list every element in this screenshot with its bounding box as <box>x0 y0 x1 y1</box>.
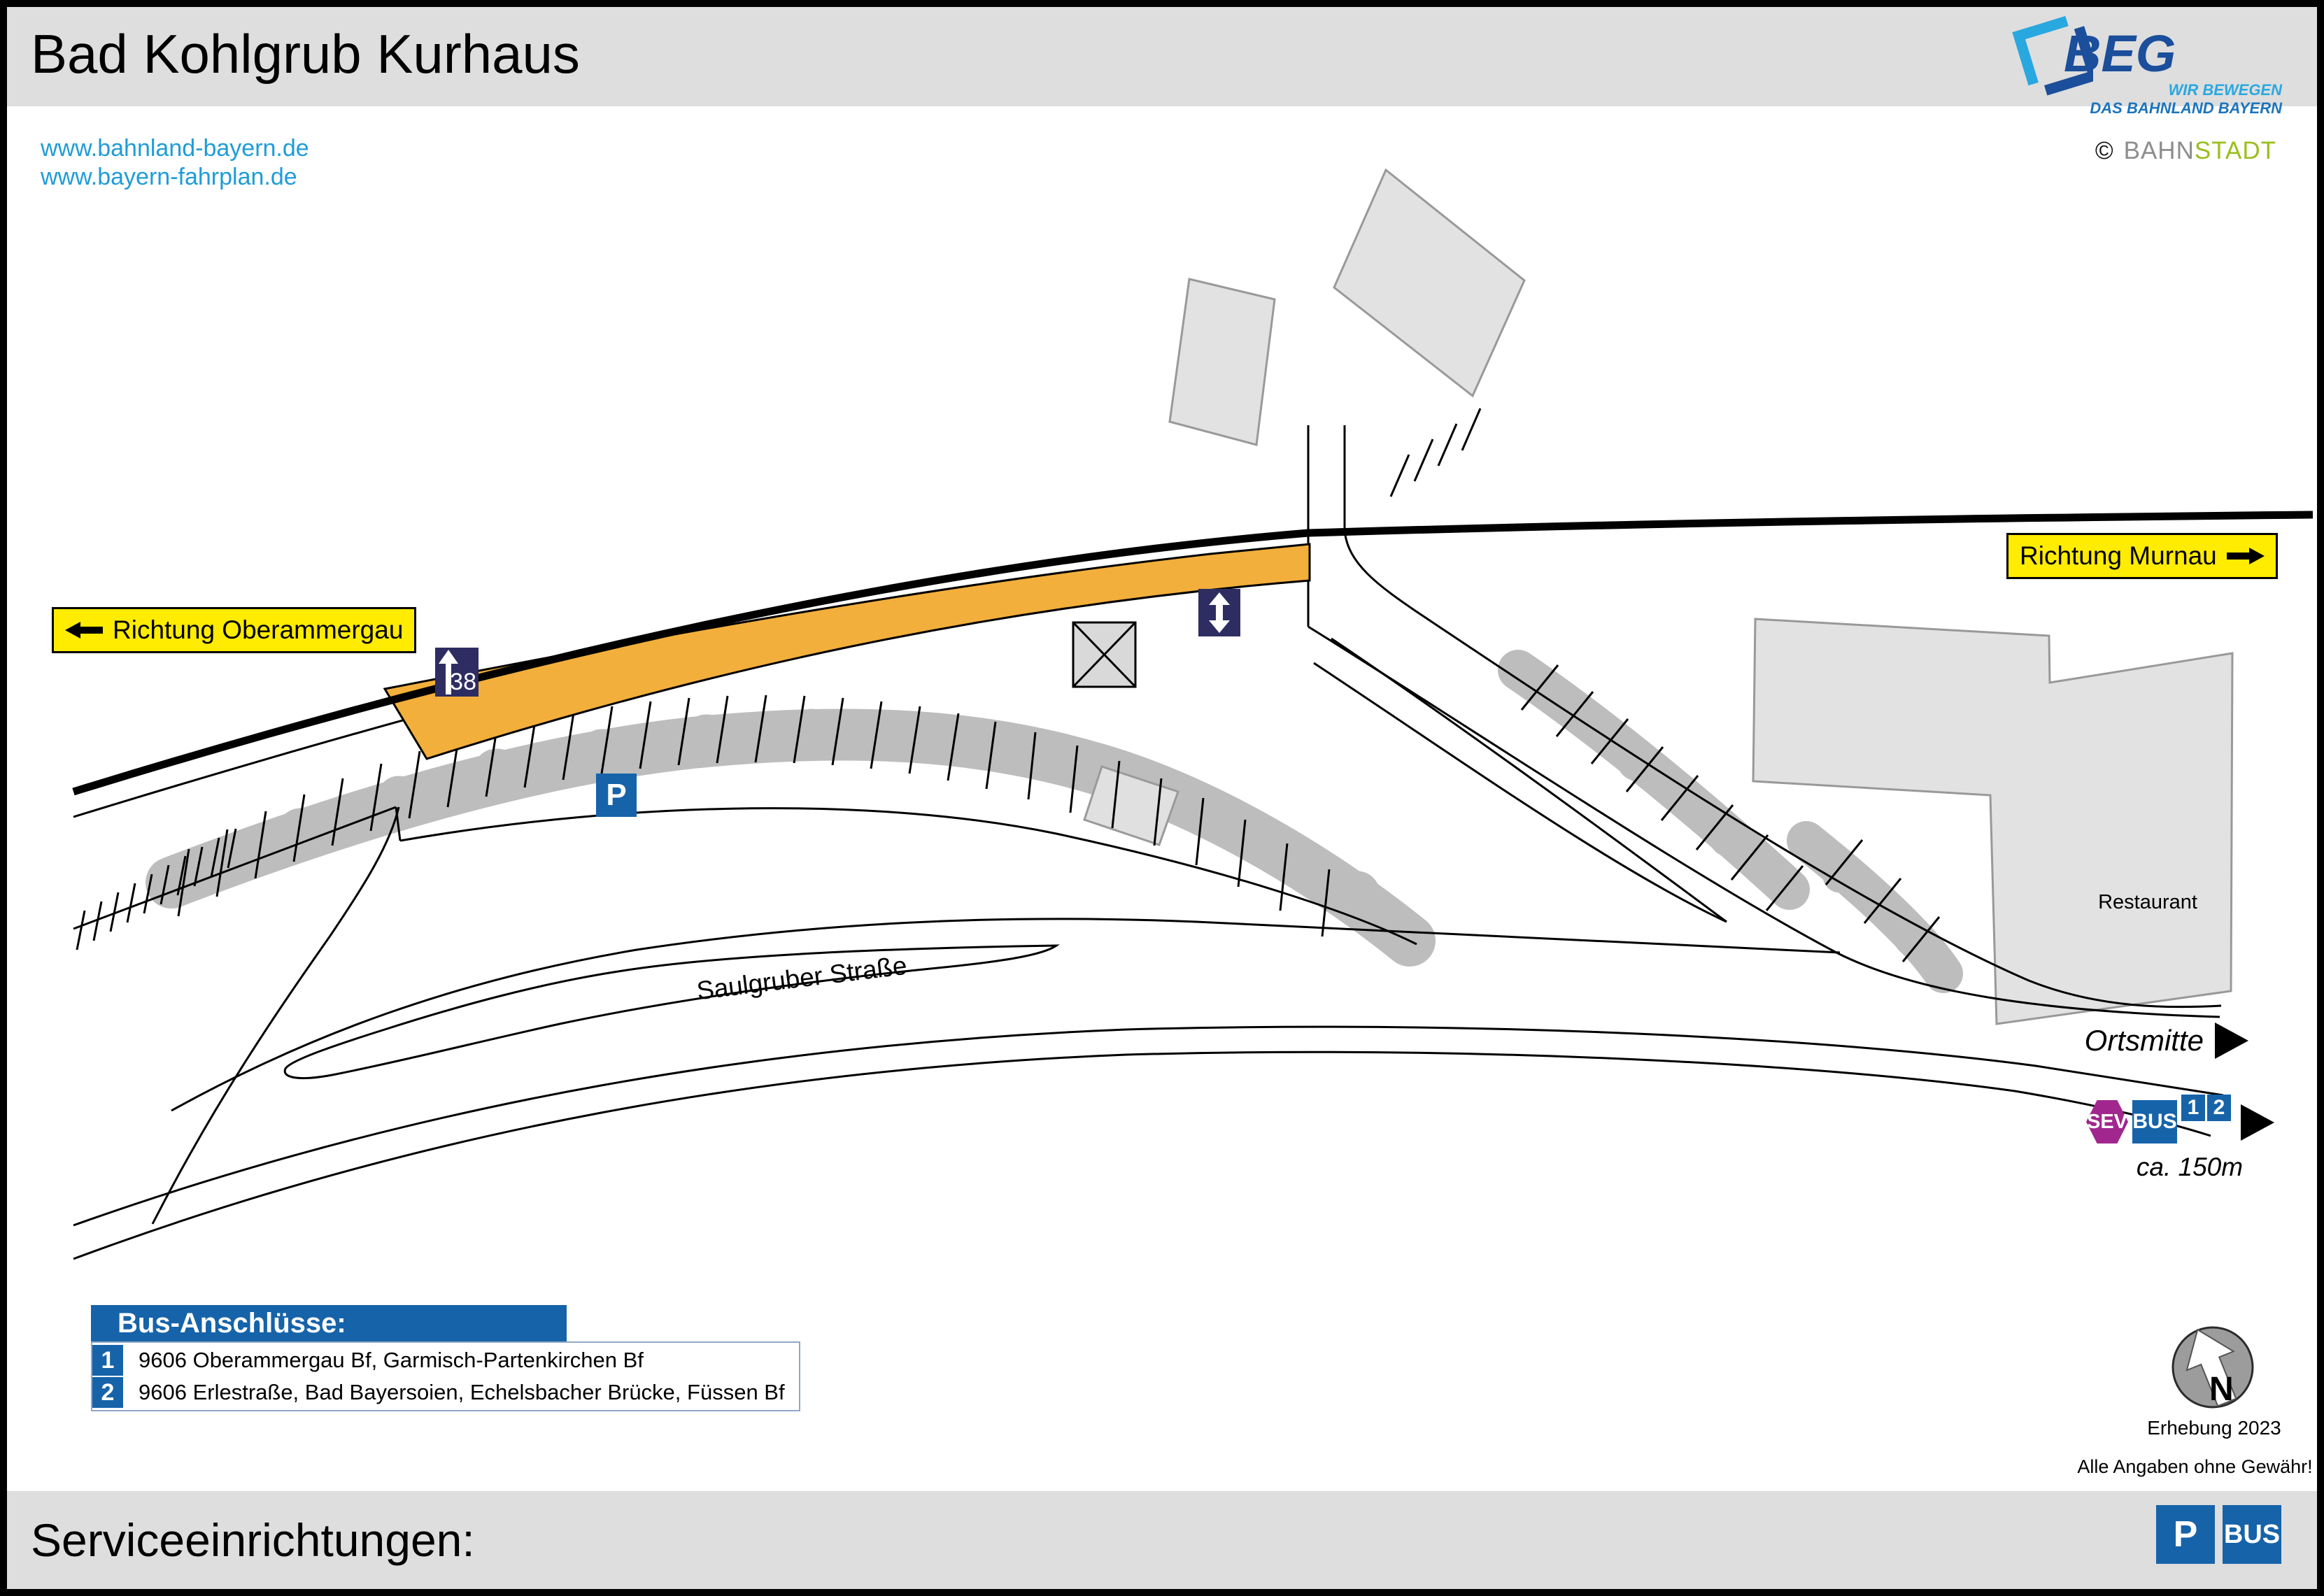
link-bahnland-bayern[interactable]: www.bahnland-bayern.de <box>41 134 309 163</box>
bahnstadt-bahn: BAHN <box>2124 137 2195 164</box>
disclaimer: Alle Angaben ohne Gewähr! <box>2071 1456 2319 1478</box>
distance-label: ca. 150m <box>2106 1153 2274 1182</box>
parking-icon: P <box>596 774 637 817</box>
bus-connections-title: Bus-Anschlüsse: <box>91 1305 567 1341</box>
beg-wordmark: BEG <box>2064 24 2176 83</box>
access-updown-icon <box>1198 589 1240 636</box>
bus-connection-text: 9606 Erlestraße, Bad Bayersoien, Echelsb… <box>139 1380 785 1405</box>
sev-icon: SEV <box>2086 1100 2128 1143</box>
beg-tagline-2: DAS BAHNLAND BAYERN <box>2090 99 2282 117</box>
left-arrow-icon <box>65 620 103 640</box>
direction-label-text: Richtung Murnau <box>2020 541 2217 571</box>
right-arrow-icon <box>2215 1023 2248 1059</box>
ortsmitte-pointer: Ortsmitte <box>1994 1023 2248 1059</box>
right-arrow-icon <box>2241 1104 2274 1141</box>
page-title: Bad Kohlgrub Kurhaus <box>31 22 580 86</box>
bus-line-2-label: 2 <box>2213 1096 2225 1120</box>
sev-icon-label: SEV <box>2087 1111 2127 1134</box>
bus-connections-title-text: Bus-Anschlüsse: <box>118 1308 346 1339</box>
direction-label-murnau: Richtung Murnau <box>2006 533 2278 579</box>
right-arrow-icon <box>2227 546 2265 566</box>
service-facilities-bar: Serviceeinrichtungen: P BUS <box>7 1491 2317 1589</box>
ortsmitte-label: Ortsmitte <box>1994 1024 2204 1057</box>
parking-space-ticks <box>77 408 1939 962</box>
bus-icon: BUS <box>2132 1100 2177 1143</box>
bus-connection-row: 2 9606 Erlestraße, Bad Bayersoien, Echel… <box>92 1376 799 1409</box>
parking-service-label: P <box>2174 1513 2198 1555</box>
double-arrow-icon <box>1208 592 1231 633</box>
bus-service-icon: BUS <box>2223 1505 2281 1564</box>
station-environment-plan: N Bad Kohlgrub Kurhaus BEG WIR BEWEGEN D… <box>0 0 2324 1596</box>
bus-line-2-badge: 2 <box>92 1377 123 1408</box>
link-bayern-fahrplan[interactable]: www.bayern-fahrplan.de <box>41 163 309 192</box>
bahnstadt-stadt: STADT <box>2195 137 2276 164</box>
bus-line-1-badge: 1 <box>2181 1095 2205 1121</box>
north-arrow-icon: N <box>2173 1320 2253 1412</box>
platform-height-value: 38 <box>450 669 476 696</box>
bus-connection-text: 9606 Oberammergau Bf, Garmisch-Partenkir… <box>139 1348 644 1373</box>
title-bar: Bad Kohlgrub Kurhaus <box>7 7 2317 106</box>
copyright-icon: © <box>2095 137 2114 164</box>
sev-bus-pointer: SEV BUS 1 2 <box>2086 1100 2274 1143</box>
bus-line-2-badge: 2 <box>2207 1095 2231 1121</box>
website-links: www.bahnland-bayern.de www.bayern-fahrpl… <box>41 134 309 192</box>
bus-line-1-label: 1 <box>2188 1096 2199 1120</box>
bus-line-1-badge: 1 <box>92 1345 123 1376</box>
street-island <box>285 946 1056 1078</box>
parking-icon-label: P <box>606 778 626 813</box>
bus-connections-list: 1 9606 Oberammergau Bf, Garmisch-Partenk… <box>91 1341 800 1411</box>
beg-tagline-1: WIR BEWEGEN <box>2168 81 2282 99</box>
north-label: N <box>2209 1371 2234 1408</box>
direction-label-oberammergau: Richtung Oberammergau <box>52 607 416 653</box>
restaurant-label: Restaurant <box>2071 891 2225 914</box>
platform-height-icon: 38 <box>435 648 479 697</box>
shelter-icon <box>1073 622 1135 687</box>
beg-logo: BEG WIR BEWEGEN DAS BAHNLAND BAYERN <box>2002 11 2282 116</box>
service-facilities-label: Serviceeinrichtungen: <box>31 1513 475 1567</box>
bus-connection-row: 1 9606 Oberammergau Bf, Garmisch-Partenk… <box>92 1344 799 1376</box>
bus-icon-label: BUS <box>2132 1110 2176 1134</box>
bahnstadt-credit: ©BAHNSTADT <box>2095 137 2276 165</box>
survey-year: Erhebung 2023 <box>2099 1417 2324 1439</box>
parking-service-icon: P <box>2156 1505 2215 1564</box>
bus-service-label: BUS <box>2224 1520 2280 1550</box>
direction-label-text: Richtung Oberammergau <box>113 615 403 645</box>
